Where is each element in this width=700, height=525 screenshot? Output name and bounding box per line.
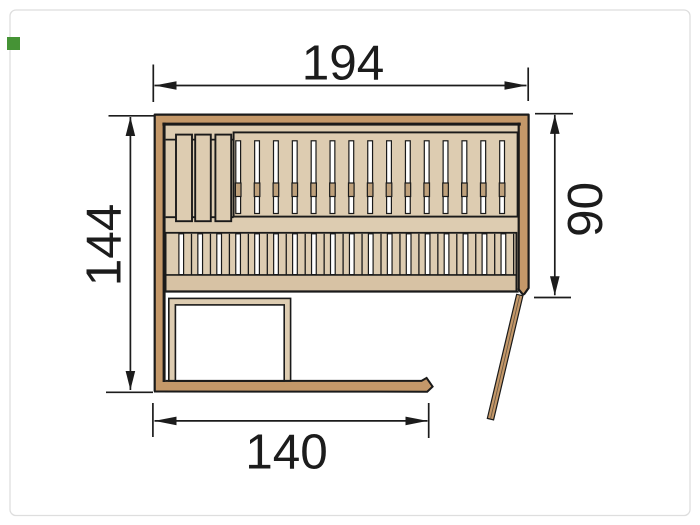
- svg-text:194: 194: [302, 36, 385, 91]
- svg-text:90: 90: [558, 182, 613, 237]
- svg-text:140: 140: [245, 424, 328, 479]
- svg-text:144: 144: [77, 204, 132, 287]
